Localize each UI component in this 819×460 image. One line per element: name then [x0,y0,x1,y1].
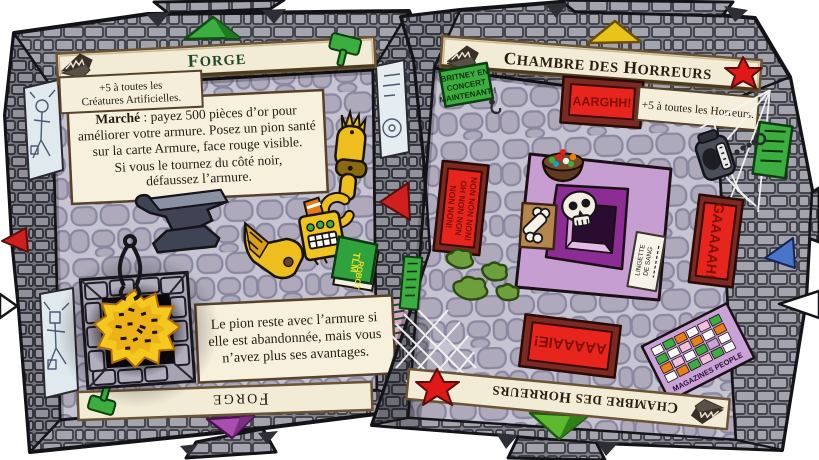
svg-text:AARGHH!: AARGHH! [572,94,631,110]
